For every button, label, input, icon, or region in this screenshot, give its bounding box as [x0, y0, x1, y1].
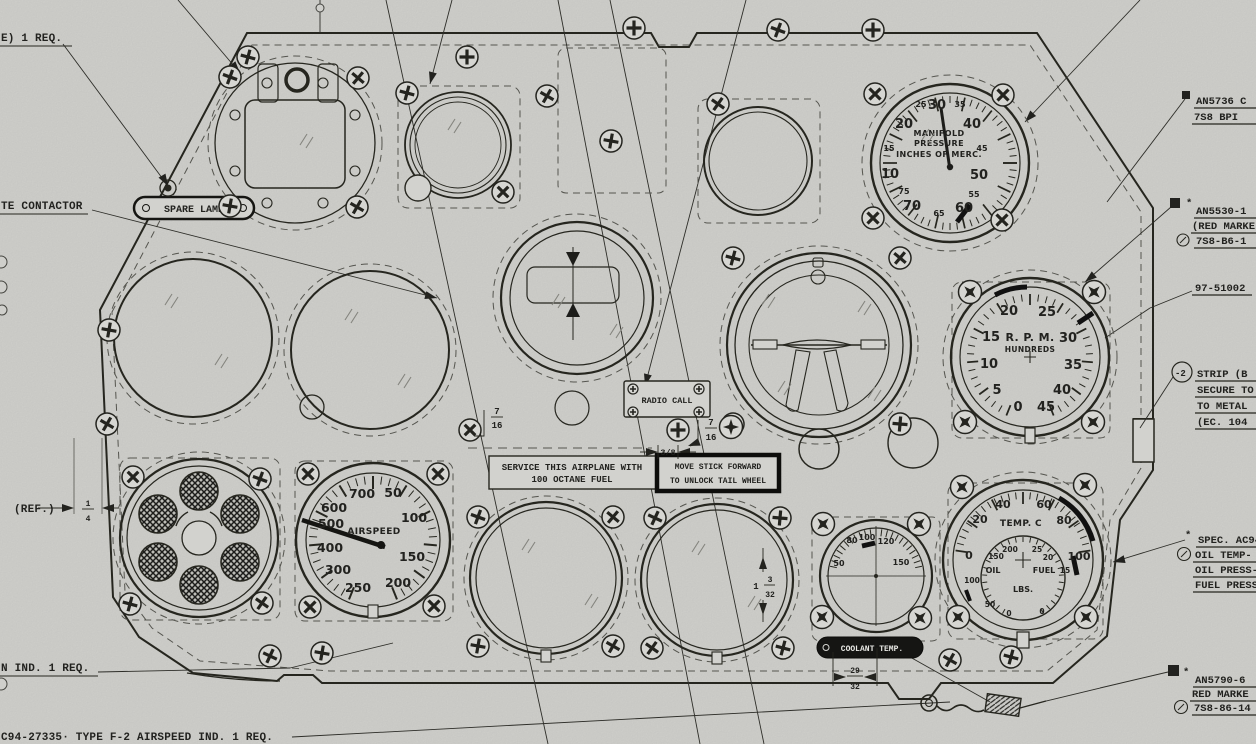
- coolant-number: 150: [893, 558, 910, 567]
- temp-number: 40: [995, 498, 1011, 511]
- callout-contactor: TE CONTACTOR: [1, 201, 83, 213]
- temp-number: 20: [972, 513, 988, 526]
- engine-title: TEMP. C: [1000, 519, 1042, 529]
- screw-icon: [427, 463, 449, 485]
- airspeed-number: 600: [321, 500, 347, 515]
- tick: [1059, 582, 1064, 583]
- airspeed-number: 100: [401, 510, 427, 525]
- manifold-number: 30: [928, 98, 946, 113]
- screw-icon: [456, 46, 478, 68]
- dim-denominator: 16: [492, 421, 503, 431]
- rpm-number: 25: [1038, 305, 1056, 320]
- stick-line-2: TO UNLOCK TAIL WHEEL: [670, 477, 766, 486]
- fuel-number: 15: [1060, 566, 1070, 575]
- screw-icon: [694, 407, 704, 417]
- oil-number: 50: [985, 600, 995, 609]
- dim-denominator: 32: [765, 591, 775, 600]
- tick: [967, 361, 978, 362]
- callout-airspeed-req: C94-27335· TYPE F-2 AIRSPEED IND. 1 REQ.: [1, 732, 273, 744]
- screw-icon: [959, 281, 982, 304]
- screw-icon: [628, 407, 638, 417]
- manifold-title: INCHES OF MERC.: [896, 150, 982, 159]
- screw-icon: [1075, 606, 1098, 629]
- dim-denominator: 16: [706, 433, 717, 443]
- screw-icon: [864, 83, 886, 105]
- rpm-number: 45: [1037, 400, 1055, 415]
- asterisk-marker: *: [1185, 530, 1191, 542]
- asterisk-marker: *: [1186, 198, 1192, 210]
- temp-number: 0: [965, 549, 973, 562]
- spare-lamp-label: SPARE LAMP: [164, 205, 224, 216]
- airspeed-number: 300: [325, 562, 351, 577]
- fuel-number: 25: [1032, 545, 1042, 554]
- airspeed-number: 400: [317, 540, 343, 555]
- screw-icon: [1083, 281, 1106, 304]
- oil-label: OIL: [986, 566, 1001, 575]
- screw-icon: [862, 207, 884, 229]
- rpm-number: 10: [980, 357, 998, 372]
- manifold-number: 70: [903, 199, 921, 214]
- manifold-minor: 55: [968, 190, 980, 199]
- airspeed-number: 50: [384, 485, 402, 500]
- tick: [1082, 361, 1093, 362]
- dim-numerator: 29: [850, 667, 860, 676]
- an5530-line-3: 7S8-B6-1: [1196, 236, 1246, 248]
- fuel-label: FUEL: [1033, 566, 1056, 575]
- manifold-minor: 35: [954, 100, 966, 109]
- oil-number: 200: [1002, 545, 1018, 554]
- rpm-number: 15: [982, 330, 1000, 345]
- coolant-number: 100: [859, 533, 876, 542]
- temp-number: 100: [1068, 550, 1091, 563]
- part-number-label: 97-51002: [1195, 283, 1245, 295]
- screw-icon: [623, 17, 645, 39]
- manifold-minor: 25: [915, 100, 927, 109]
- asterisk-marker: *: [1183, 667, 1189, 679]
- service-line-2: 100 OCTANE FUEL: [531, 475, 612, 485]
- screw-icon: [811, 606, 834, 629]
- screw-icon: [909, 607, 932, 630]
- an5790-line-3: 7S8-86-14: [1194, 703, 1251, 715]
- oil-number: 0: [1006, 609, 1011, 618]
- radio-call-label: RADIO CALL: [641, 396, 692, 406]
- callout-ind-req: N IND. 1 REQ.: [1, 663, 89, 675]
- dim-denominator: 32: [850, 683, 860, 692]
- rpm-number: 20: [1000, 304, 1018, 319]
- gauge-tab: [1017, 632, 1029, 648]
- screw-icon: [297, 463, 319, 485]
- airspeed-number: 700: [349, 486, 375, 501]
- oil-number: 100: [964, 576, 980, 585]
- screw-icon: [991, 209, 1013, 231]
- strip-line-3: TO METAL: [1197, 401, 1247, 413]
- mounting-strip-tab: [1133, 419, 1154, 462]
- spec-line-3: OIL PRESS- RE: [1195, 565, 1256, 577]
- screw-icon: [908, 513, 931, 536]
- ref-numerator: 1: [86, 500, 91, 509]
- strip-line-1: STRIP (B: [1197, 369, 1248, 381]
- airspeed-number: 150: [399, 549, 425, 564]
- an5530-line-2: (RED MARKE: [1192, 221, 1255, 233]
- dim-whole: 1: [753, 582, 759, 592]
- oil-number: 150: [988, 552, 1004, 561]
- gauge-tab: [1025, 428, 1035, 443]
- strip-line-2: SECURE TO: [1197, 385, 1254, 397]
- tick: [424, 544, 437, 545]
- rpm-number: 35: [1064, 358, 1082, 373]
- service-placard: SERVICE THIS AIRPLANE WITH 100 OCTANE FU…: [489, 456, 656, 489]
- screw-icon: [628, 384, 638, 394]
- temp-number: 60: [1036, 498, 1052, 511]
- dim-numerator: 7: [708, 418, 713, 428]
- coolant-number: 80: [846, 536, 858, 545]
- dim-value: 3/8: [660, 448, 675, 458]
- rpm-number: 5: [992, 383, 1001, 398]
- rpm-title: R. P. M.: [1005, 331, 1054, 344]
- tick: [982, 582, 987, 583]
- airspeed-number: 250: [345, 580, 371, 595]
- manifold-title: PRESSURE: [914, 139, 964, 148]
- adjust-knob: [405, 175, 431, 201]
- dim-numerator: 7: [494, 407, 499, 417]
- rpm-number: 0: [1013, 400, 1022, 415]
- coolant-limit-mark: [862, 543, 875, 546]
- coolant-number: 50: [833, 559, 845, 568]
- fuel-number: 0: [1039, 607, 1044, 616]
- dim-numerator: 3: [768, 576, 773, 585]
- tail-wheel-placard: MOVE STICK FORWARD TO UNLOCK TAIL WHEEL: [657, 455, 779, 491]
- screw-icon: [954, 411, 977, 434]
- an5736-line-1: AN5736 C: [1196, 96, 1247, 108]
- callout-req-top: E) 1 REQ.: [1, 33, 62, 45]
- gauge-tab: [368, 605, 378, 618]
- screw-icon: [1074, 474, 1097, 497]
- manifold-number: 20: [895, 117, 913, 132]
- airspeed-number: 500: [318, 516, 344, 531]
- callout-97-51002: 97-51002: [1192, 283, 1252, 295]
- spec-line-2: OIL TEMP- RE: [1195, 550, 1256, 562]
- blueprint-canvas: 30 20 40 10 50 70 60 25 35 15 45 75 55 6…: [0, 0, 1256, 744]
- coolant-number: 120: [878, 537, 895, 546]
- an5736-line-2: 7S8 BPI: [1194, 112, 1238, 124]
- manifold-minor: 75: [898, 187, 910, 196]
- manifold-number: 40: [963, 117, 981, 132]
- fuel-number: 20: [1043, 553, 1053, 562]
- instrument-panel-drawing: 30 20 40 10 50 70 60 25 35 15 45 75 55 6…: [0, 0, 1256, 744]
- temp-number: 80: [1056, 514, 1072, 527]
- screw-icon: [951, 476, 974, 499]
- strip-ref-label: -2: [1175, 369, 1186, 379]
- ref-label: (REF.): [14, 504, 55, 516]
- screw-icon: [299, 596, 321, 618]
- screw-icon: [1082, 411, 1105, 434]
- screw-icon: [862, 19, 884, 41]
- strip-line-4: (EC. 104: [1197, 417, 1247, 429]
- manifold-number: 60: [955, 201, 973, 216]
- an5530-line-1: AN5530-1: [1196, 206, 1246, 218]
- coolant-placard-label: COOLANT TEMP.: [841, 645, 903, 654]
- service-line-1: SERVICE THIS AIRPLANE WITH: [502, 463, 642, 473]
- spec-line-4: FUEL PRESS-: [1195, 580, 1256, 592]
- rpm-number: 30: [1059, 331, 1077, 346]
- screw-icon: [812, 513, 835, 536]
- screw-icon: [694, 384, 704, 394]
- airspeed-title: AIRSPEED: [347, 527, 400, 537]
- manifold-number: 50: [970, 168, 988, 183]
- manifold-minor: 15: [883, 144, 895, 153]
- screw-icon: [947, 606, 970, 629]
- rpm-subtitle: HUNDREDS: [1005, 345, 1056, 354]
- manifold-title: MANIFOLD: [913, 129, 964, 138]
- spec-line-1: SPEC. AC94-2: [1198, 535, 1256, 547]
- manifold-number: 10: [881, 167, 899, 182]
- ref-denominator: 4: [86, 515, 91, 524]
- lbs-label: LBS.: [1013, 585, 1033, 594]
- screw-icon: [667, 419, 689, 441]
- manifold-minor: 65: [933, 209, 945, 218]
- screw-icon: [992, 84, 1014, 106]
- rpm-number: 40: [1053, 383, 1071, 398]
- an5790-line-1: AN5790-6: [1195, 675, 1245, 687]
- an5790-line-2: RED MARKE: [1192, 689, 1249, 701]
- screw-icon: [423, 595, 445, 617]
- stick-line-1: MOVE STICK FORWARD: [675, 463, 762, 472]
- airspeed-number: 200: [385, 575, 411, 590]
